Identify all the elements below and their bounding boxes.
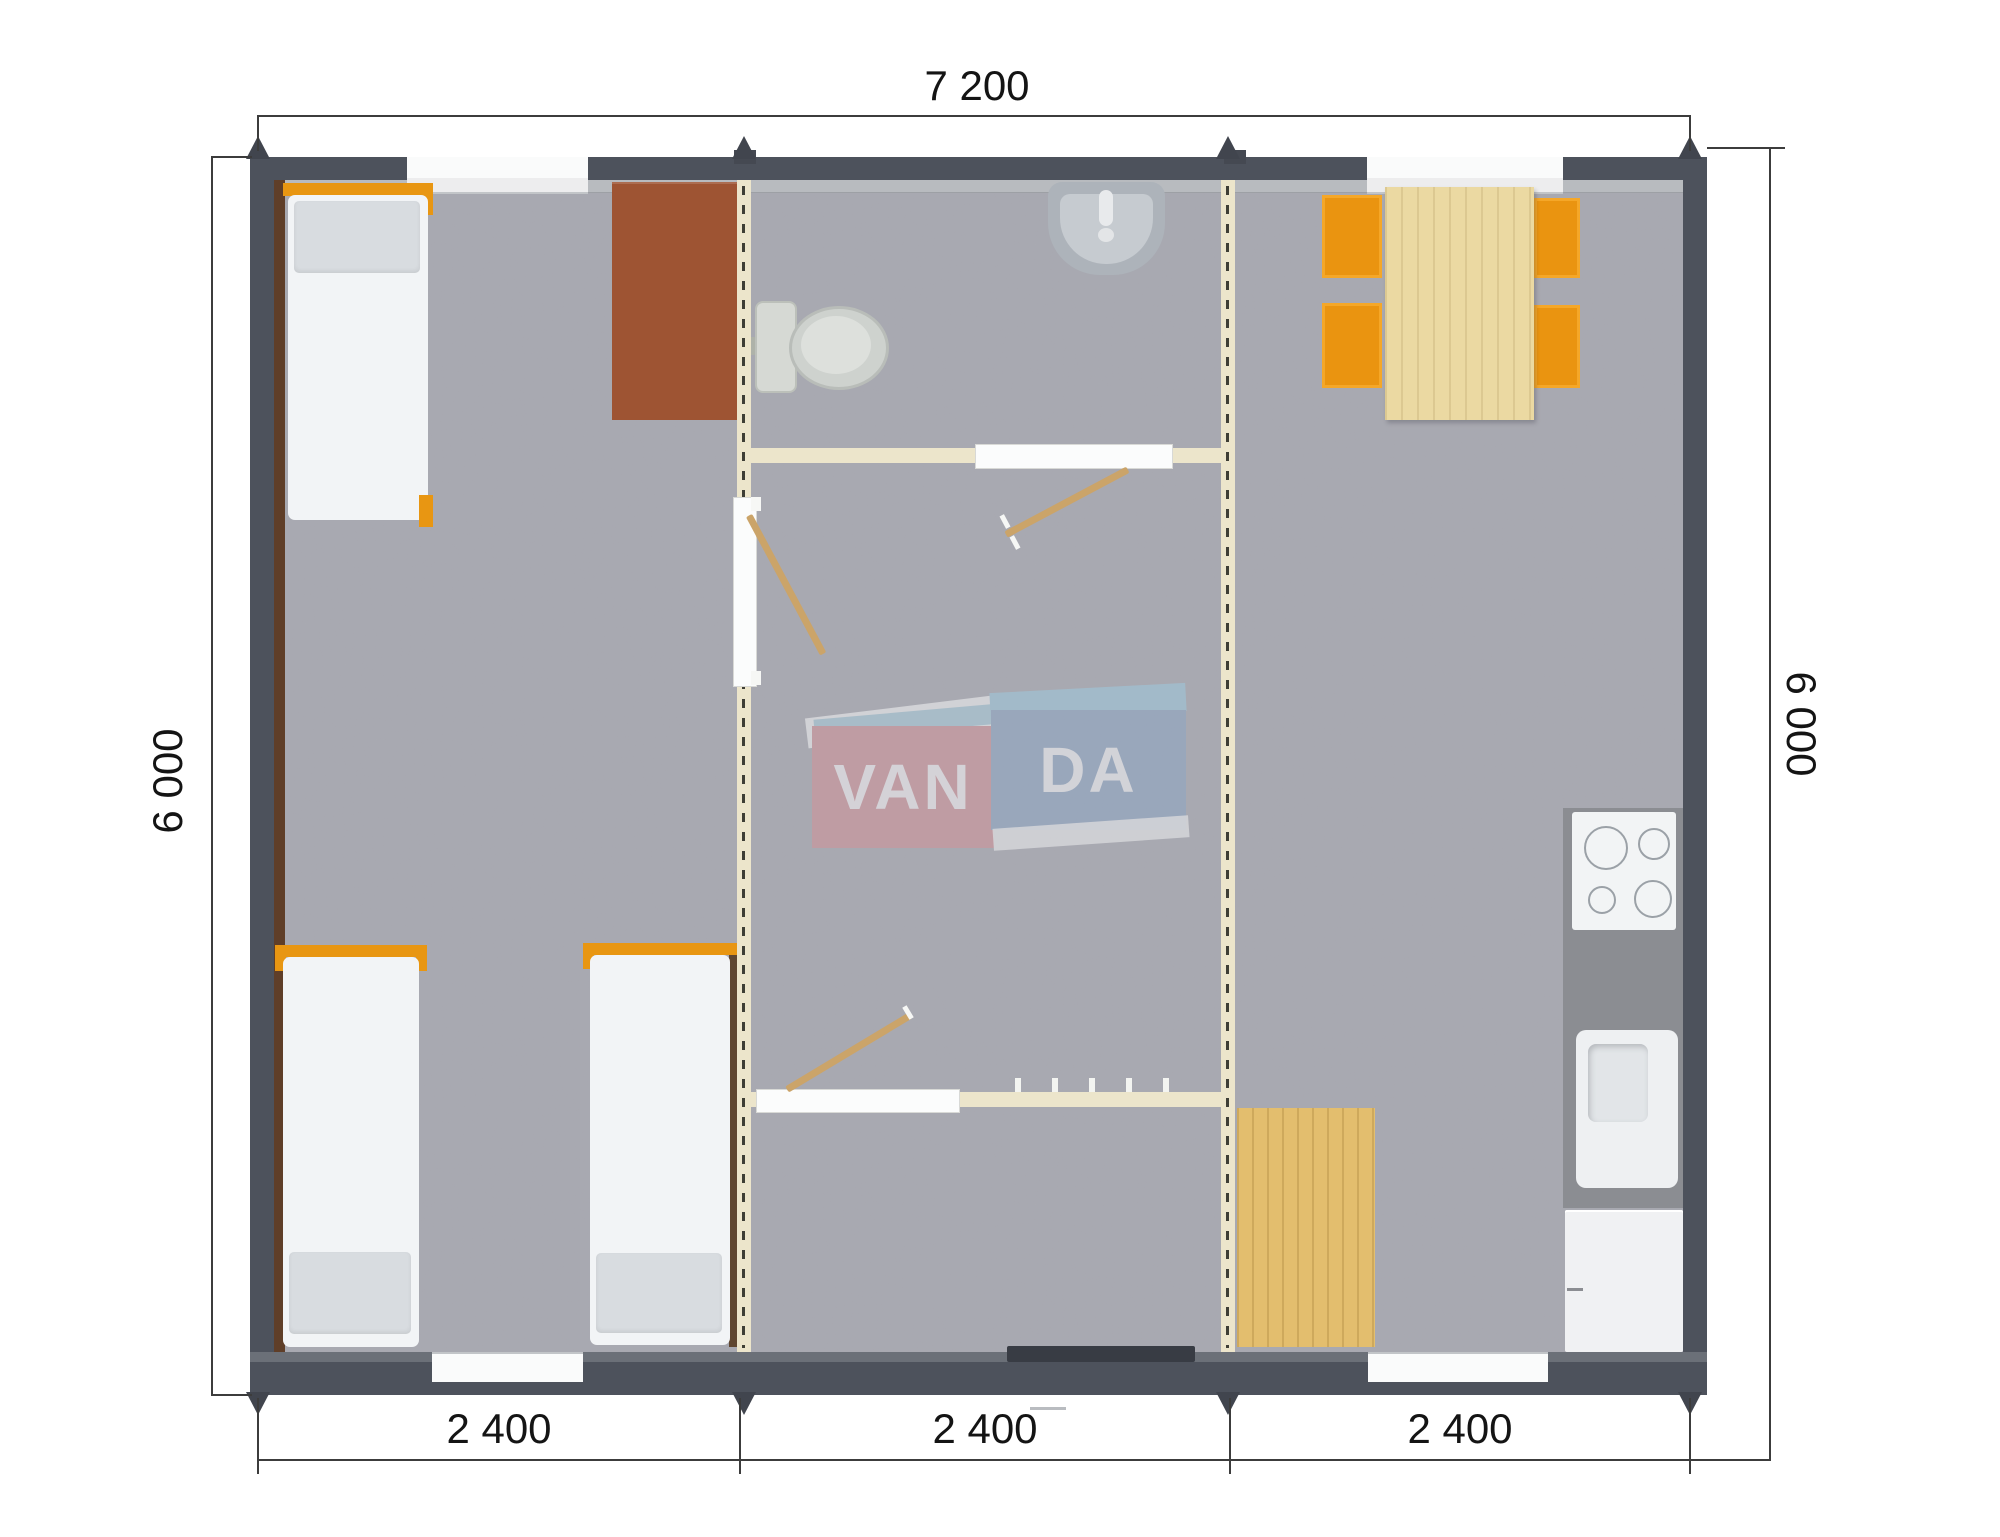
dim-text-left: 6 000 [144, 706, 192, 856]
coat-hook-5 [1163, 1078, 1169, 1092]
washbasin-drain [1098, 228, 1114, 242]
window-bottom-left [432, 1352, 583, 1382]
cabinet-handle [1567, 1288, 1583, 1291]
marker-bottom-module-1 [732, 1392, 756, 1415]
coat-hook-4 [1126, 1078, 1132, 1092]
stove-burner-medium-br [1634, 880, 1672, 918]
bed1-pillow [294, 201, 420, 273]
module-divider-2-dashline [1226, 186, 1229, 1348]
dim-ext-bottom-4 [1689, 1398, 1691, 1474]
bed3-shadow-strip [729, 955, 737, 1347]
stove-burner-small-tr [1638, 828, 1670, 860]
dim-ext-bottom-3 [1229, 1398, 1231, 1474]
chair-bottom-right [1534, 305, 1580, 388]
bed3-frame-bar [583, 943, 740, 955]
logo-text-van: VAN [812, 726, 994, 848]
coat-hook-3 [1089, 1078, 1095, 1092]
entrance-door-threshold [1007, 1346, 1195, 1362]
wall-right [1683, 157, 1707, 1395]
floor-mat [1237, 1108, 1375, 1347]
chair-bottom-left [1322, 303, 1382, 388]
bed1-frame-bracket [419, 495, 433, 527]
dim-text-top: 7 200 [902, 62, 1052, 110]
bed3-pillow [596, 1253, 722, 1333]
window-bottom-right [1368, 1352, 1548, 1382]
dim-text-bottom-left: 2 400 [424, 1405, 574, 1453]
floor-plan-canvas: VAN DA 7 200 6 000 6 000 2 400 2 400 2 4… [0, 0, 2000, 1537]
chair-top-left [1322, 195, 1382, 278]
dim-ext-right-top [1707, 147, 1785, 149]
wall-left [250, 157, 274, 1395]
window-top-left [407, 157, 588, 194]
marker-top-module-2 [1216, 136, 1240, 159]
marker-bottom-module-2 [1216, 1392, 1240, 1415]
dim-ext-top-left [257, 115, 259, 151]
kitchen-sink-basin [1588, 1044, 1648, 1122]
desk [612, 182, 743, 420]
dim-ext-left-top [211, 156, 252, 158]
bathroom-door [975, 444, 1173, 469]
hall-door [756, 1089, 960, 1113]
coat-hook-2 [1052, 1078, 1058, 1092]
module-divider-1-dashline [742, 186, 745, 1348]
dim-text-bottom-right: 2 400 [1385, 1405, 1535, 1453]
dim-line-top [257, 115, 1691, 117]
toilet-seat [801, 316, 871, 374]
coat-hook-1 [1015, 1078, 1021, 1092]
stove-burner-small-bl [1588, 886, 1616, 914]
dim-ext-bottom-1 [257, 1398, 259, 1474]
dim-line-left [211, 156, 213, 1396]
dim-text-bottom-middle: 2 400 [910, 1405, 1060, 1453]
dining-table [1385, 187, 1534, 420]
logo-text-da: DA [991, 710, 1186, 830]
bedroom-door-hinge-bottom [751, 671, 761, 685]
stove-burner-large [1584, 826, 1628, 870]
bed2-frame-bar [275, 945, 427, 957]
marker-top-module-1 [732, 136, 756, 159]
chair-top-right [1534, 198, 1580, 278]
dim-ext-top-right [1689, 115, 1691, 151]
dim-line-bottom [257, 1459, 1771, 1461]
dim-ext-left-bottom [211, 1394, 252, 1396]
washbasin-faucet [1099, 190, 1113, 226]
dim-ext-bottom-2 [739, 1398, 741, 1474]
bed2-pillow [289, 1252, 411, 1334]
vanda-logo: VAN DA [810, 686, 1188, 852]
dim-line-right [1769, 147, 1771, 1461]
bedroom-door-hinge-top [751, 497, 761, 511]
dim-text-right: 6 000 [1777, 649, 1825, 799]
kitchen-cabinet [1565, 1210, 1683, 1352]
